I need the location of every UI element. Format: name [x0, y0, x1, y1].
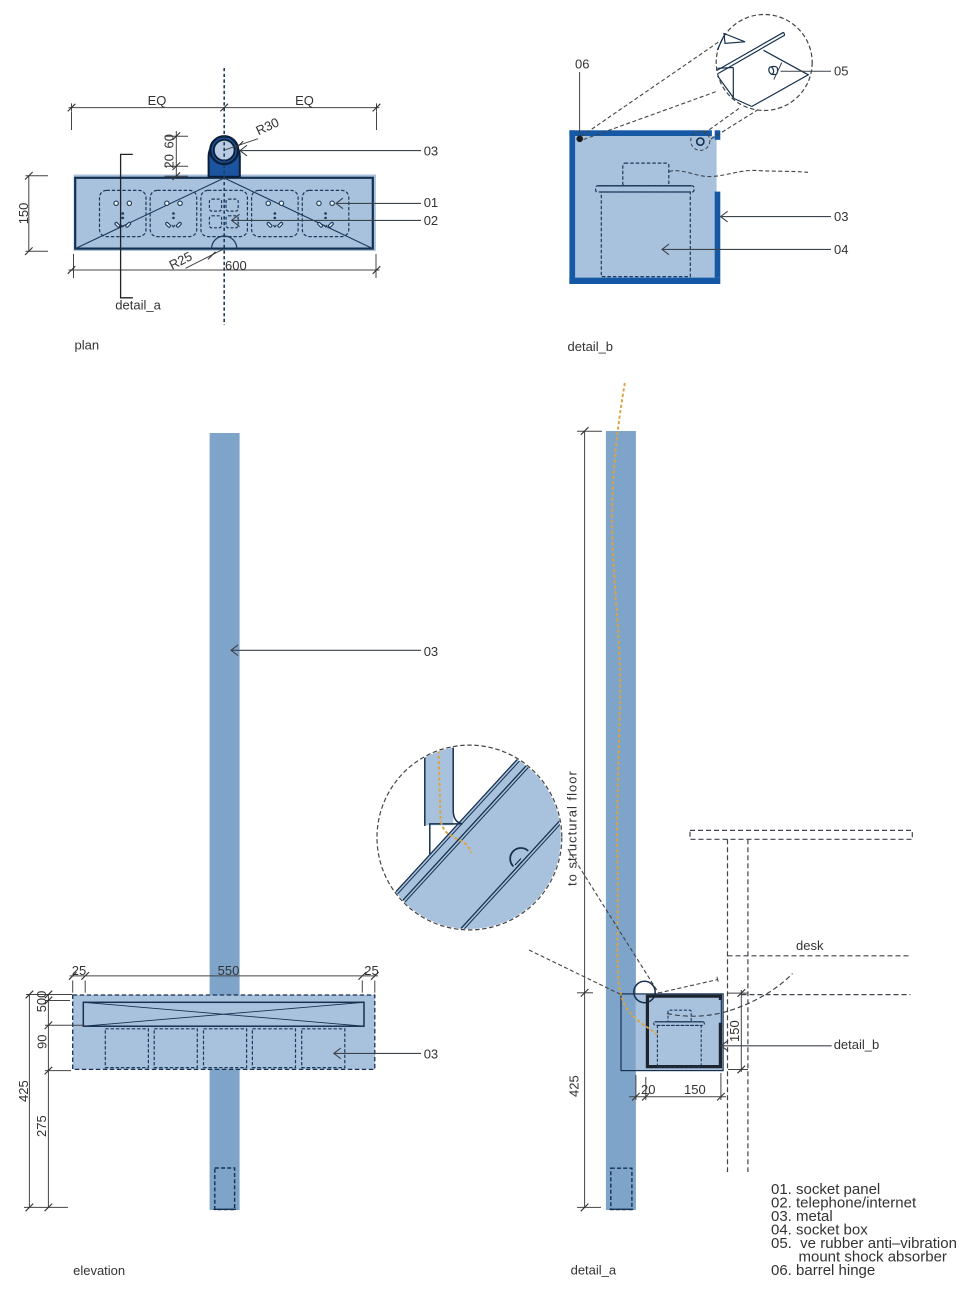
svg-text:150: 150: [684, 1082, 706, 1097]
svg-text:90: 90: [34, 1035, 49, 1049]
svg-text:06. barrel hinge: 06. barrel hinge: [771, 1262, 875, 1279]
svg-text:425: 425: [567, 1075, 582, 1097]
svg-text:desk: desk: [796, 938, 824, 953]
svg-text:03: 03: [424, 644, 438, 659]
svg-text:05: 05: [834, 64, 848, 79]
svg-text:04: 04: [834, 242, 848, 257]
svg-text:detail_a: detail_a: [115, 297, 161, 312]
svg-text:detail_b: detail_b: [834, 1037, 880, 1052]
svg-text:03: 03: [834, 209, 848, 224]
svg-text:275: 275: [34, 1115, 49, 1137]
svg-text:03: 03: [424, 1047, 438, 1062]
svg-text:detail_a: detail_a: [571, 1263, 617, 1278]
svg-text:02: 02: [424, 213, 438, 228]
svg-text:550: 550: [218, 963, 240, 978]
svg-text:25: 25: [72, 963, 86, 978]
svg-text:R30: R30: [253, 115, 281, 139]
svg-text:60: 60: [162, 134, 177, 148]
svg-text:06: 06: [575, 56, 589, 71]
svg-text:20: 20: [641, 1082, 655, 1097]
svg-text:150: 150: [727, 1020, 742, 1042]
svg-text:150: 150: [16, 203, 31, 225]
svg-text:to structural floor: to structural floor: [565, 770, 580, 886]
svg-text:elevation: elevation: [73, 1263, 125, 1278]
svg-text:20: 20: [162, 154, 177, 168]
svg-text:600: 600: [225, 258, 247, 273]
svg-text:25: 25: [364, 963, 378, 978]
svg-text:01: 01: [424, 195, 438, 210]
svg-text:R25: R25: [167, 248, 195, 272]
svg-text:plan: plan: [75, 337, 100, 352]
svg-text:03: 03: [424, 143, 438, 158]
svg-text:500: 500: [34, 991, 49, 1013]
svg-text:425: 425: [16, 1080, 31, 1102]
svg-text:EQ: EQ: [148, 93, 167, 108]
svg-text:EQ: EQ: [295, 93, 314, 108]
svg-text:detail_b: detail_b: [568, 339, 614, 354]
